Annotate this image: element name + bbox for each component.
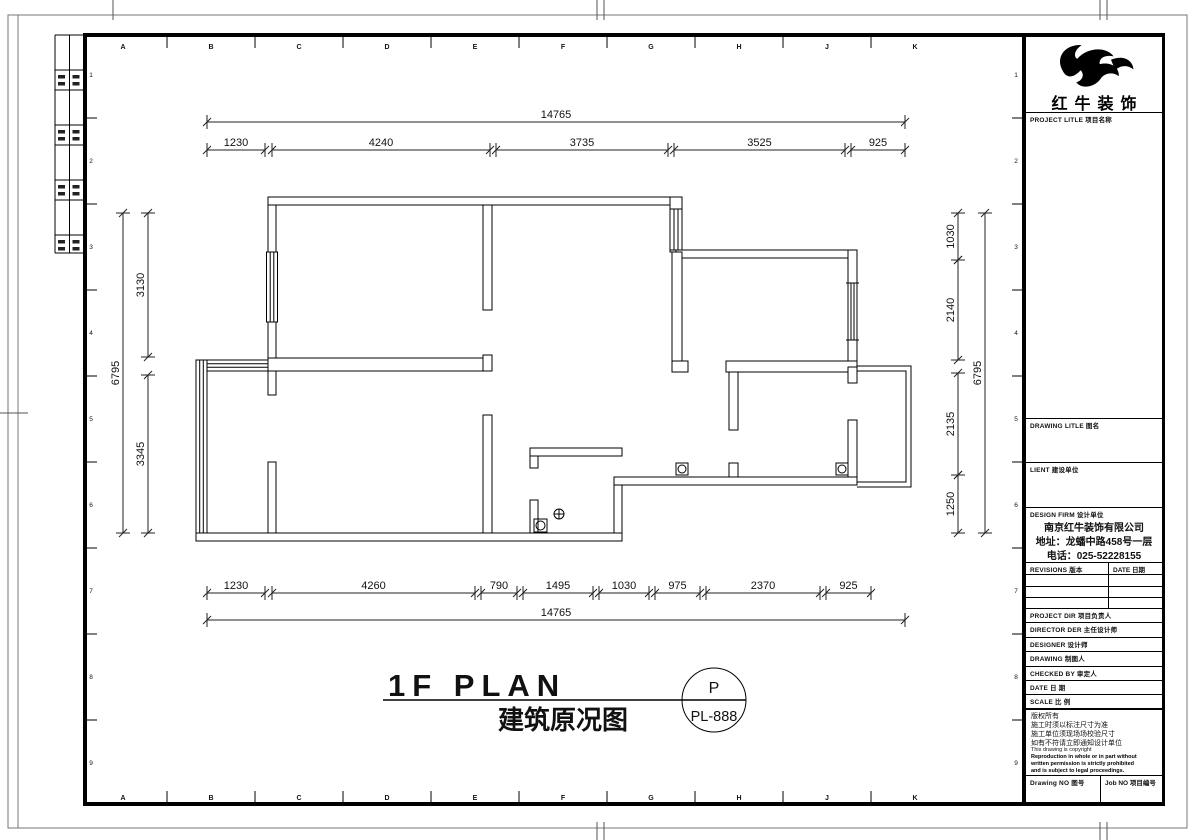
dimension: 6795 [972, 209, 992, 537]
grid-number-right: 7 [1014, 588, 1018, 595]
project-dir-label: PROJECT DIR 项目负责人 [1030, 610, 1111, 620]
wall-v6-b [729, 463, 738, 477]
grid-number-left: 9 [89, 760, 93, 767]
dimension-label: 1250 [945, 492, 957, 516]
dimension: 3525 [670, 137, 849, 157]
firm-name: 南京红牛装饰有限公司 [1026, 519, 1162, 534]
grid-letter-bottom: C [296, 795, 301, 802]
project-title-section: PROJECT LITLE 项目名称 [1026, 112, 1162, 418]
wall-right-upper [848, 250, 857, 367]
grid-number-left: 2 [89, 158, 93, 165]
drawing-label: DRAWING 制图人 [1030, 653, 1085, 663]
revisions-label: REVISIONS 版本 [1030, 564, 1083, 574]
grid-number-right: 5 [1014, 416, 1018, 423]
grid-number-left: 3 [89, 244, 93, 251]
rev-date-label: DATE 日期 [1113, 564, 1145, 574]
designer-label: DESIGNER 设计师 [1030, 639, 1088, 649]
note-line-bold: and is subject to legal proceedings. [1031, 768, 1124, 774]
dimension-label: 3735 [570, 137, 594, 149]
floor-plan-canvas: AABBCCDDEEFFGGHHJJKK112233445566778899 [0, 0, 1200, 840]
revision-row-empty [1026, 586, 1162, 597]
grid-number-left: 7 [89, 588, 93, 595]
grid-letter-top: J [825, 44, 829, 51]
title-block: 红牛装饰 PROJECT LITLE 项目名称 DRAWING LITLE 图名… [1026, 37, 1162, 802]
firm-phone: 电话：025-52228155 [1026, 547, 1162, 562]
dimension-label: 4240 [369, 137, 393, 149]
plan-badge-code: PL-888 [691, 709, 738, 725]
director-label: DIRECTOR DER 主任设计师 [1030, 624, 1117, 634]
grid-number-right: 4 [1014, 330, 1018, 337]
date-row: DATE 日 期 [1026, 680, 1162, 694]
revision-row-empty [1026, 574, 1162, 586]
grid-number-right: 9 [1014, 760, 1018, 767]
dimension: 4260 [268, 580, 479, 600]
dimension: 1495 [519, 580, 597, 600]
wall-h4-right [726, 361, 857, 372]
grid-number-left: 1 [89, 72, 93, 79]
brand-name: 红牛装饰 [1026, 90, 1162, 114]
balcony-left-side-band [196, 360, 207, 533]
dimension: 3345 [135, 371, 155, 537]
dimension-label: 790 [490, 580, 508, 592]
dimension: 2140 [945, 256, 965, 364]
grid-number-left: 8 [89, 674, 93, 681]
dimension: 2135 [945, 369, 965, 479]
note-line-bold: Reproduction in whole or in part without [1031, 754, 1137, 760]
grid-letter-bottom: G [648, 795, 654, 802]
wall-center-v2 [483, 355, 492, 371]
dimension-label: 1030 [945, 224, 957, 248]
grid-letter-top: D [384, 44, 389, 51]
dimension: 14765 [203, 607, 909, 627]
grid-letter-bottom: J [825, 795, 829, 802]
dimension: 1230 [203, 137, 269, 157]
dimension-label: 925 [839, 580, 857, 592]
project-dir-row: PROJECT DIR 项目负责人 [1026, 608, 1162, 622]
dimension-label: 3345 [135, 442, 147, 466]
grid-letter-bottom: F [561, 795, 566, 802]
director-row: DIRECTOR DER 主任设计师 [1026, 622, 1162, 637]
grid-letter-top: K [912, 44, 917, 51]
signoff-strip [55, 35, 85, 253]
client-section: LIENT 建设单位 [1026, 462, 1162, 507]
dimension: 3735 [492, 137, 672, 157]
dimension-label: 1030 [612, 580, 636, 592]
grid-letter-bottom: E [473, 795, 478, 802]
drawing-no-label: Drawing NO 图号 [1030, 777, 1085, 787]
grid-number-right: 8 [1014, 674, 1018, 681]
dimension: 1250 [945, 471, 965, 537]
grid-letter-bottom: B [208, 795, 213, 802]
drawing-title-section: DRAWING LITLE 图名 [1026, 418, 1162, 462]
revisions-header-row: REVISIONS 版本 DATE 日期 [1026, 562, 1162, 574]
wall-bath-top [530, 448, 622, 456]
scale-row: SCALE 比 例 [1026, 694, 1162, 708]
designer-row: DESIGNER 设计师 [1026, 637, 1162, 651]
checked-row: CHECKED BY 审定人 [1026, 666, 1162, 680]
grid-number-right: 3 [1014, 244, 1018, 251]
dimension-label: 4260 [361, 580, 385, 592]
window-left [267, 252, 278, 322]
dimension-label: 1495 [546, 580, 570, 592]
wall-v6-a [729, 372, 738, 430]
wall-hall-right [672, 252, 682, 361]
bull-logo-icon [1042, 39, 1147, 91]
grid-letter-top: E [473, 44, 478, 51]
signoff-marks [58, 75, 80, 251]
grid-letter-bottom: D [384, 795, 389, 802]
balconies [196, 360, 911, 533]
dimension-label: 14765 [541, 109, 572, 121]
dimension-label: 6795 [110, 361, 122, 385]
dimension-label: 925 [869, 137, 887, 149]
plan-badge-letter: P [709, 680, 720, 697]
dimension-label: 975 [668, 580, 686, 592]
client-label: LIENT 建设单位 [1030, 464, 1079, 474]
dimension-label: 1230 [224, 580, 248, 592]
dimension: 975 [651, 580, 704, 600]
dimension-label: 2370 [751, 580, 775, 592]
note-line: This drawing is copyright [1031, 747, 1092, 753]
revisions-column-divider [1108, 562, 1109, 608]
scale-label: SCALE 比 例 [1030, 696, 1070, 706]
grid-number-right: 1 [1014, 72, 1018, 79]
grid-letter-top: C [296, 44, 301, 51]
wall-h4-left [672, 361, 688, 372]
drawing-title-group: 1F PLAN 建筑原况图 P PL-888 [383, 668, 746, 735]
project-title-label: PROJECT LITLE 项目名称 [1030, 114, 1112, 124]
wall-bath-left-a [530, 456, 538, 468]
dimension: 1230 [203, 580, 269, 600]
dimension-label: 2140 [945, 298, 957, 322]
drawing-no-divider [1100, 775, 1101, 802]
plan-title-cn: 建筑原况图 [498, 705, 628, 735]
dimension: 2370 [702, 580, 824, 600]
wall-bottom [196, 533, 622, 541]
dimension: 4240 [268, 137, 494, 157]
wall-center-v3 [483, 415, 492, 533]
grid-number-right: 2 [1014, 158, 1018, 165]
drawing-sheet: AABBCCDDEEFFGGHHJJKK112233445566778899 [0, 0, 1200, 840]
grid-letter-bottom: A [120, 795, 125, 802]
wall-mid-divider [268, 358, 492, 371]
wall-hall-bottom [614, 477, 857, 485]
dimension: 3130 [135, 209, 155, 361]
plumbing-symbols [534, 463, 848, 532]
grid-letter-top: B [208, 44, 213, 51]
drawing-row: DRAWING 制图人 [1026, 651, 1162, 666]
wall-top-main [268, 197, 678, 205]
grid-number-left: 6 [89, 502, 93, 509]
date-label: DATE 日 期 [1030, 682, 1065, 692]
dimension-label: 2135 [945, 412, 957, 436]
note-line-bold: written permission is strictly prohibite… [1031, 761, 1134, 767]
wall-step [670, 197, 682, 252]
dimension-label: 3525 [747, 137, 771, 149]
grid-letter-top: G [648, 44, 654, 51]
grid-number-right: 6 [1014, 502, 1018, 509]
checked-label: CHECKED BY 审定人 [1030, 668, 1097, 678]
grid-letter-bottom: K [912, 795, 917, 802]
wall-right-lower-b [848, 420, 857, 485]
wall-top-right [676, 250, 857, 258]
dimension: 925 [847, 137, 909, 157]
dimension-label: 14765 [541, 607, 572, 619]
grid-letter-bottom: H [736, 795, 741, 802]
dimension: 1030 [595, 580, 653, 600]
windows [267, 209, 860, 340]
grid-letter-top: A [120, 44, 125, 51]
design-firm-section: DESIGN FIRM 设计单位 南京红牛装饰有限公司 地址：龙蟠中路458号一… [1026, 507, 1162, 562]
floor-plan-walls [196, 197, 857, 541]
wall-left-3 [268, 462, 276, 533]
dimension: 925 [822, 580, 875, 600]
firm-address: 地址：龙蟠中路458号一层 [1026, 533, 1162, 548]
wall-left-1 [268, 205, 276, 252]
job-no-label: Job NO 项目编号 [1105, 777, 1156, 787]
grid-letter-top: H [736, 44, 741, 51]
wall-bath-right [614, 485, 622, 533]
company-logo [1042, 39, 1147, 91]
floor-drain-icon [554, 509, 564, 519]
drawing-title-label: DRAWING LITLE 图名 [1030, 420, 1099, 430]
dimension: 6795 [110, 209, 130, 537]
dimension-label: 3130 [135, 273, 147, 297]
balcony-right-outer [857, 366, 911, 487]
dimension: 1030 [945, 209, 965, 264]
design-firm-label: DESIGN FIRM 设计单位 [1030, 509, 1104, 519]
dimension: 790 [477, 580, 521, 600]
notes-section: 版权所有 施工时须以标注尺寸为准 施工单位须现场场校验尺寸 如有不符请立即通知设… [1026, 708, 1162, 775]
grid-number-left: 5 [89, 416, 93, 423]
balcony-right-inner [857, 371, 906, 482]
wall-center-v1 [483, 205, 492, 310]
dimension-label: 1230 [224, 137, 248, 149]
grid-letter-top: F [561, 44, 566, 51]
logo-section: 红牛装饰 [1026, 37, 1162, 112]
grid-number-left: 4 [89, 330, 93, 337]
dimension-label: 6795 [972, 361, 984, 385]
dimension: 14765 [203, 109, 909, 129]
drawing-no-row: Drawing NO 图号 Job NO 项目编号 [1026, 775, 1162, 802]
wall-right-lower-a [848, 367, 857, 383]
revision-row-empty [1026, 597, 1162, 608]
plan-title-en: 1F PLAN [388, 668, 566, 703]
